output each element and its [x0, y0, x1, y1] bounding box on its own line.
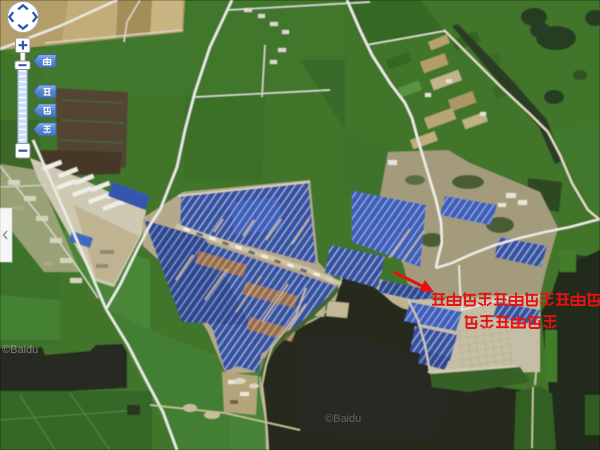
svg-text:©Baidu: ©Baidu: [325, 413, 361, 425]
svg-text:©Baidu: ©Baidu: [2, 344, 38, 356]
